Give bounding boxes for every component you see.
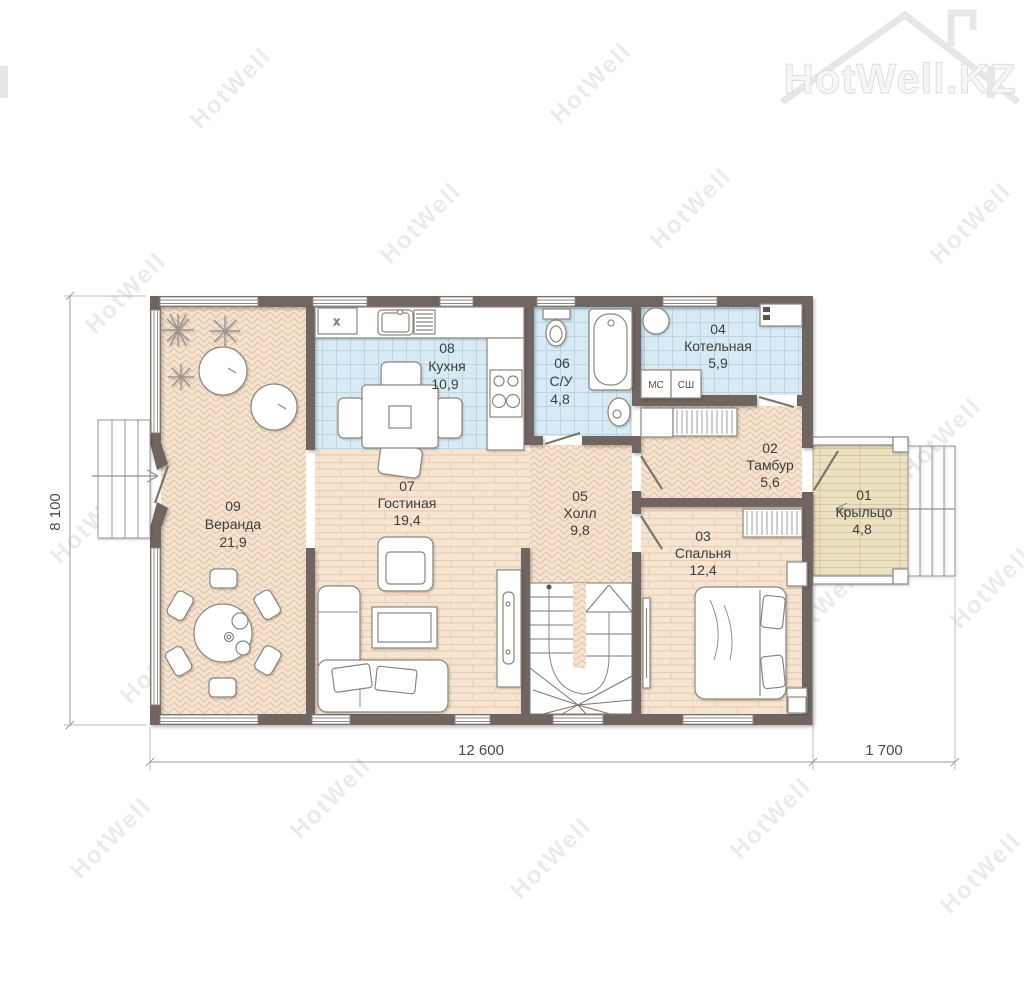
wall-veranda-living: [306, 548, 315, 714]
staircase: [530, 583, 632, 714]
chair: [210, 569, 237, 588]
bathtub: [589, 309, 632, 390]
svg-text:Тамбур: Тамбур: [746, 457, 794, 473]
logo-post-left-icon: [0, 66, 8, 98]
floor-plan-drawing: HotWell HotWell HotWell HotWell HotWell …: [0, 0, 1024, 990]
watermark-text: HotWell: [185, 42, 277, 134]
wall-bathroom-bottom-a: [534, 436, 543, 445]
svg-text:02: 02: [762, 440, 778, 456]
svg-text:9,8: 9,8: [570, 522, 590, 538]
svg-text:12,4: 12,4: [689, 562, 716, 578]
wall-kitchen-bathroom: [524, 307, 534, 445]
veranda-steps: [98, 420, 150, 538]
dish-rack: [414, 310, 435, 334]
window: [553, 715, 603, 724]
round-table: [199, 347, 247, 395]
dryer-label: СШ: [678, 380, 694, 391]
bed: [695, 587, 786, 699]
window: [312, 715, 350, 724]
tambour-cabinet: [641, 408, 673, 437]
tv-stand: [497, 570, 521, 687]
tambour-wardrobe: [673, 408, 737, 436]
plate: [232, 613, 248, 629]
chair: [209, 678, 236, 697]
coffee-table: [372, 607, 437, 648]
svg-text:Гостиная: Гостиная: [378, 495, 437, 511]
window: [683, 715, 753, 724]
brand-logo: HotWell.KZ: [0, 13, 1018, 102]
watermark-text: HotWell: [285, 752, 377, 844]
stair-start-dot: [547, 585, 552, 590]
watermark-text: HotWell: [645, 162, 737, 254]
watermark-text: HotWell: [925, 177, 1017, 269]
watermark-text: HotWell: [545, 37, 637, 129]
window: [440, 297, 473, 306]
washer-label: МС: [648, 380, 664, 391]
svg-text:Веранда: Веранда: [205, 516, 262, 532]
dimension-height: 8 100: [47, 493, 64, 531]
chair: [436, 398, 462, 438]
faucet-icon: [398, 310, 403, 315]
svg-text:09: 09: [225, 498, 241, 514]
window: [313, 297, 367, 306]
armchair: [378, 537, 433, 591]
svg-text:С/У: С/У: [550, 373, 573, 389]
svg-text:19,4: 19,4: [393, 512, 420, 528]
window: [455, 715, 490, 724]
window: [160, 297, 258, 306]
pillow: [760, 655, 785, 689]
wall-hall-post: [632, 436, 641, 453]
watermark-text: HotWell: [935, 827, 1024, 919]
wall-bathroom-bottom-b: [582, 436, 632, 445]
sofa-pillow: [332, 663, 373, 692]
floor-plan-page: HotWell HotWell HotWell HotWell HotWell …: [0, 0, 1024, 990]
svg-text:07: 07: [399, 478, 415, 494]
kitchen-table: [362, 385, 438, 448]
chair: [381, 362, 421, 388]
watermark-text: HotWell: [505, 812, 597, 904]
svg-text:Кухня: Кухня: [428, 358, 465, 374]
wall-boiler-tambour-b: [797, 395, 813, 406]
pillow: [760, 595, 785, 629]
wall-veranda-kitchen: [306, 307, 315, 450]
svg-text:01: 01: [856, 487, 872, 503]
water-heater: [643, 308, 669, 334]
dresser: [788, 697, 806, 713]
porch-post: [893, 569, 908, 584]
svg-text:Котельная: Котельная: [684, 338, 752, 354]
wall-hall-bedroom: [632, 552, 641, 714]
window: [160, 715, 258, 724]
watermark-text: HotWell: [65, 792, 157, 884]
svg-text:Холл: Холл: [564, 505, 597, 521]
window: [151, 310, 160, 433]
svg-text:10,9: 10,9: [431, 376, 458, 392]
svg-text:04: 04: [710, 321, 726, 337]
logo-text: HotWell.KZ: [783, 55, 1016, 102]
svg-text:5,9: 5,9: [708, 355, 728, 371]
window: [151, 548, 160, 705]
wall-bathroom-boiler: [632, 307, 641, 395]
svg-text:21,9: 21,9: [219, 534, 246, 550]
bathroom-sink: [608, 398, 630, 426]
stove: [490, 370, 522, 417]
svg-text:Крыльцо: Крыльцо: [835, 504, 892, 520]
wall-right-upper: [802, 296, 813, 448]
bedroom-wardrobe: [743, 509, 802, 537]
svg-text:4,8: 4,8: [852, 521, 872, 537]
wall-hall-mid: [632, 491, 641, 514]
dimension-width-porch: 1 700: [865, 742, 903, 759]
watermark-text: HotWell: [945, 542, 1024, 634]
plate: [236, 641, 250, 655]
porch-post: [893, 437, 908, 452]
watermark-text: HotWell: [725, 772, 817, 864]
sofa-pillow: [375, 666, 417, 694]
dimension-width-main: 12 600: [458, 742, 504, 759]
svg-text:5,6: 5,6: [760, 474, 780, 490]
svg-text:05: 05: [572, 488, 588, 504]
boiler-unit: [760, 304, 802, 326]
round-table: [251, 384, 297, 430]
logo-chimney-icon: [951, 13, 973, 46]
window: [663, 297, 717, 306]
chair: [338, 398, 364, 438]
svg-text:Спальня: Спальня: [675, 545, 731, 561]
tv-panel: [643, 598, 650, 688]
window: [537, 297, 575, 306]
porch-rail-top: [813, 437, 893, 445]
decor: [227, 635, 231, 639]
fridge-label: x: [334, 316, 340, 328]
svg-text:08: 08: [439, 340, 455, 356]
svg-text:4,8: 4,8: [550, 391, 570, 407]
wall-tambour-bedroom: [641, 498, 813, 507]
watermark-text: HotWell: [895, 392, 987, 484]
porch-rail-bottom: [813, 576, 893, 584]
wall-living-hall: [521, 548, 530, 714]
nightstand: [787, 562, 807, 586]
watermark-text: HotWell: [375, 177, 467, 269]
svg-text:06: 06: [554, 355, 570, 371]
svg-text:03: 03: [695, 528, 711, 544]
